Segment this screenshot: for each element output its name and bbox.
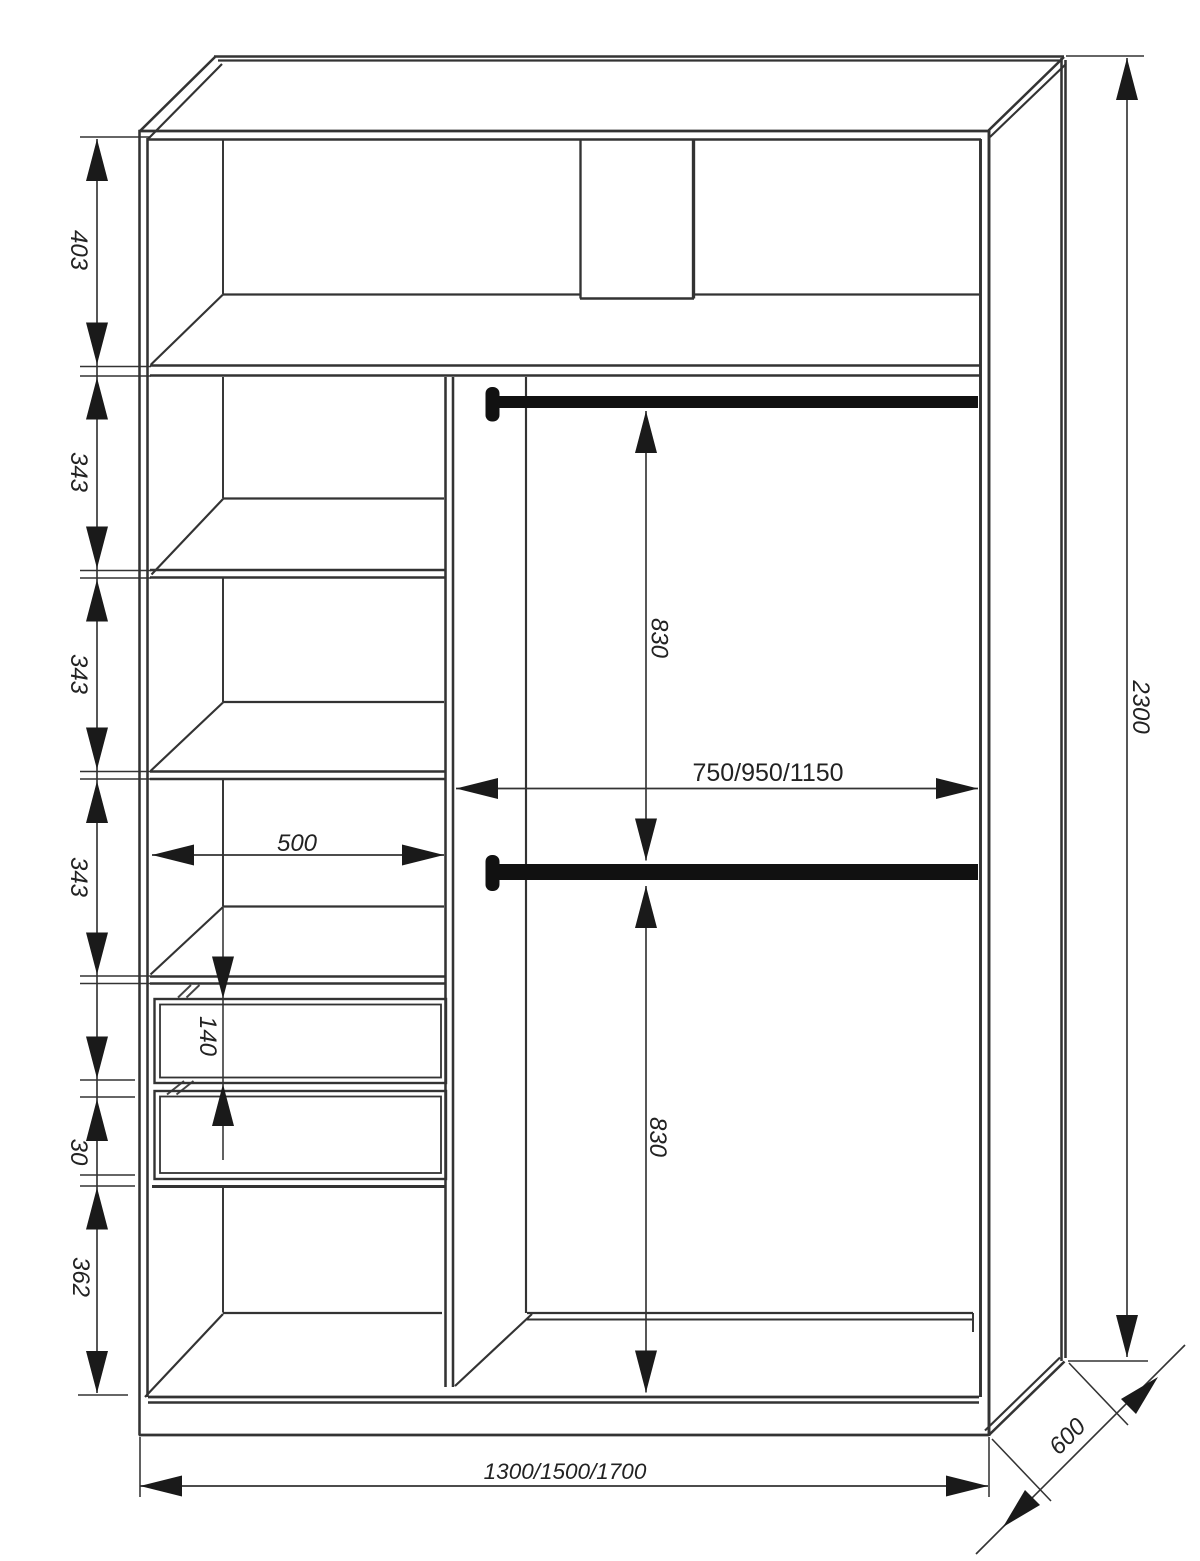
svg-text:1300/1500/1700: 1300/1500/1700	[484, 1459, 647, 1484]
svg-text:403: 403	[65, 230, 92, 271]
svg-text:30: 30	[65, 1139, 92, 1166]
svg-text:343: 343	[65, 654, 92, 695]
svg-text:500: 500	[277, 830, 318, 857]
svg-text:2300: 2300	[1127, 679, 1154, 734]
svg-text:830: 830	[646, 618, 673, 659]
svg-text:750/950/1150: 750/950/1150	[692, 759, 843, 787]
svg-text:140: 140	[194, 1016, 221, 1057]
svg-text:362: 362	[67, 1257, 94, 1297]
svg-text:343: 343	[65, 857, 92, 898]
svg-text:830: 830	[644, 1117, 671, 1158]
svg-text:343: 343	[65, 452, 92, 493]
